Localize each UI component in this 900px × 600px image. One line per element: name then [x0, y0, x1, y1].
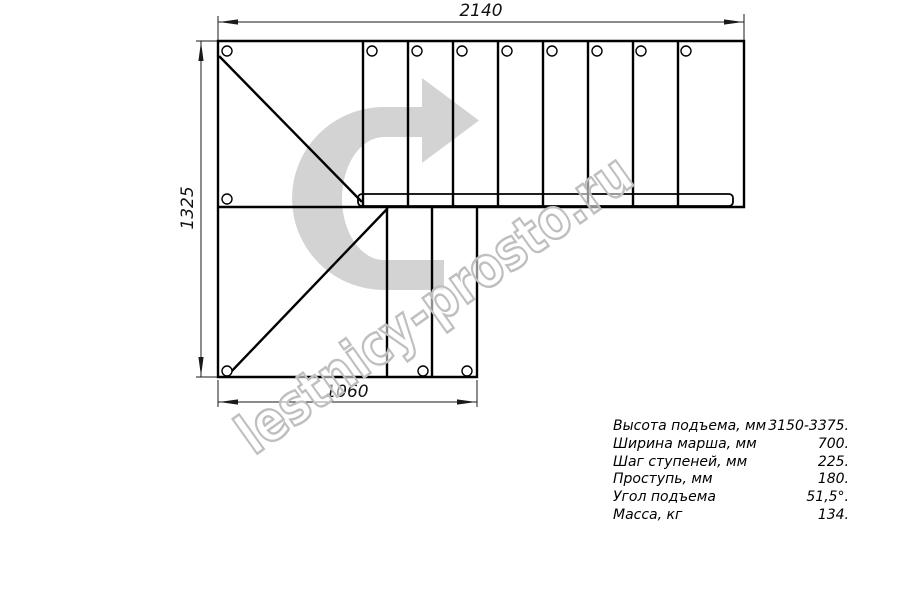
spec-label: Шаг ступеней, мм — [613, 454, 747, 472]
spec-label: Угол подъема — [613, 489, 716, 507]
spec-label: Масса, кг — [613, 507, 682, 525]
hole-marker — [502, 46, 512, 56]
hole-marker — [222, 194, 232, 204]
spec-label: Проступь, мм — [613, 471, 713, 489]
spec-value: 134. — [818, 507, 849, 525]
staircase-drawing-canvas: 2140 1325 1060 lestnicy-prosto.ru Высота… — [0, 0, 900, 600]
hole-marker — [636, 46, 646, 56]
spec-label: Высота подъема, мм — [613, 418, 766, 436]
hole-marker — [367, 46, 377, 56]
dimension-arrowhead-down — [198, 357, 203, 376]
spec-label: Ширина марша, мм — [613, 436, 757, 454]
hole-marker — [222, 46, 232, 56]
spec-row: Масса, кг 134. — [613, 507, 849, 525]
direction-arrow-head — [422, 78, 479, 163]
dimension-top: 2140 — [218, 1, 744, 40]
dimension-top-label: 2140 — [459, 1, 502, 21]
spec-value: 3150-3375. — [768, 418, 849, 436]
dimension-arrowhead-left — [219, 399, 238, 404]
dimension-left: 1325 — [178, 41, 217, 377]
spec-row: Ширина марша, мм 700. — [613, 436, 849, 454]
hole-marker — [457, 46, 467, 56]
hole-marker — [418, 366, 428, 376]
watermark: lestnicy-prosto.ru — [224, 142, 644, 468]
hole-marker — [412, 46, 422, 56]
dimension-left-label: 1325 — [178, 186, 198, 229]
hole-marker — [222, 366, 232, 376]
hole-marker — [462, 366, 472, 376]
spec-table: Высота подъема, мм 3150-3375. Ширина мар… — [613, 418, 849, 525]
spec-row: Угол подъема 51,5°. — [613, 489, 849, 507]
direction-arrow-body — [292, 107, 444, 290]
spec-value: 700. — [818, 436, 849, 454]
hole-marker — [547, 46, 557, 56]
spec-value: 225. — [818, 454, 849, 472]
hole-marker — [592, 46, 602, 56]
spec-row: Проступь, мм 180. — [613, 471, 849, 489]
dimension-arrowhead-left — [219, 19, 238, 24]
spec-value: 180. — [818, 471, 849, 489]
dimension-arrowhead-right — [457, 399, 476, 404]
spec-row: Высота подъема, мм 3150-3375. — [613, 418, 849, 436]
dimension-arrowhead-right — [724, 19, 743, 24]
spec-row: Шаг ступеней, мм 225. — [613, 454, 849, 472]
dimension-arrowhead-up — [198, 42, 203, 61]
dimension-left-lines — [196, 41, 217, 377]
spec-value: 51,5°. — [806, 489, 849, 507]
hole-marker — [681, 46, 691, 56]
